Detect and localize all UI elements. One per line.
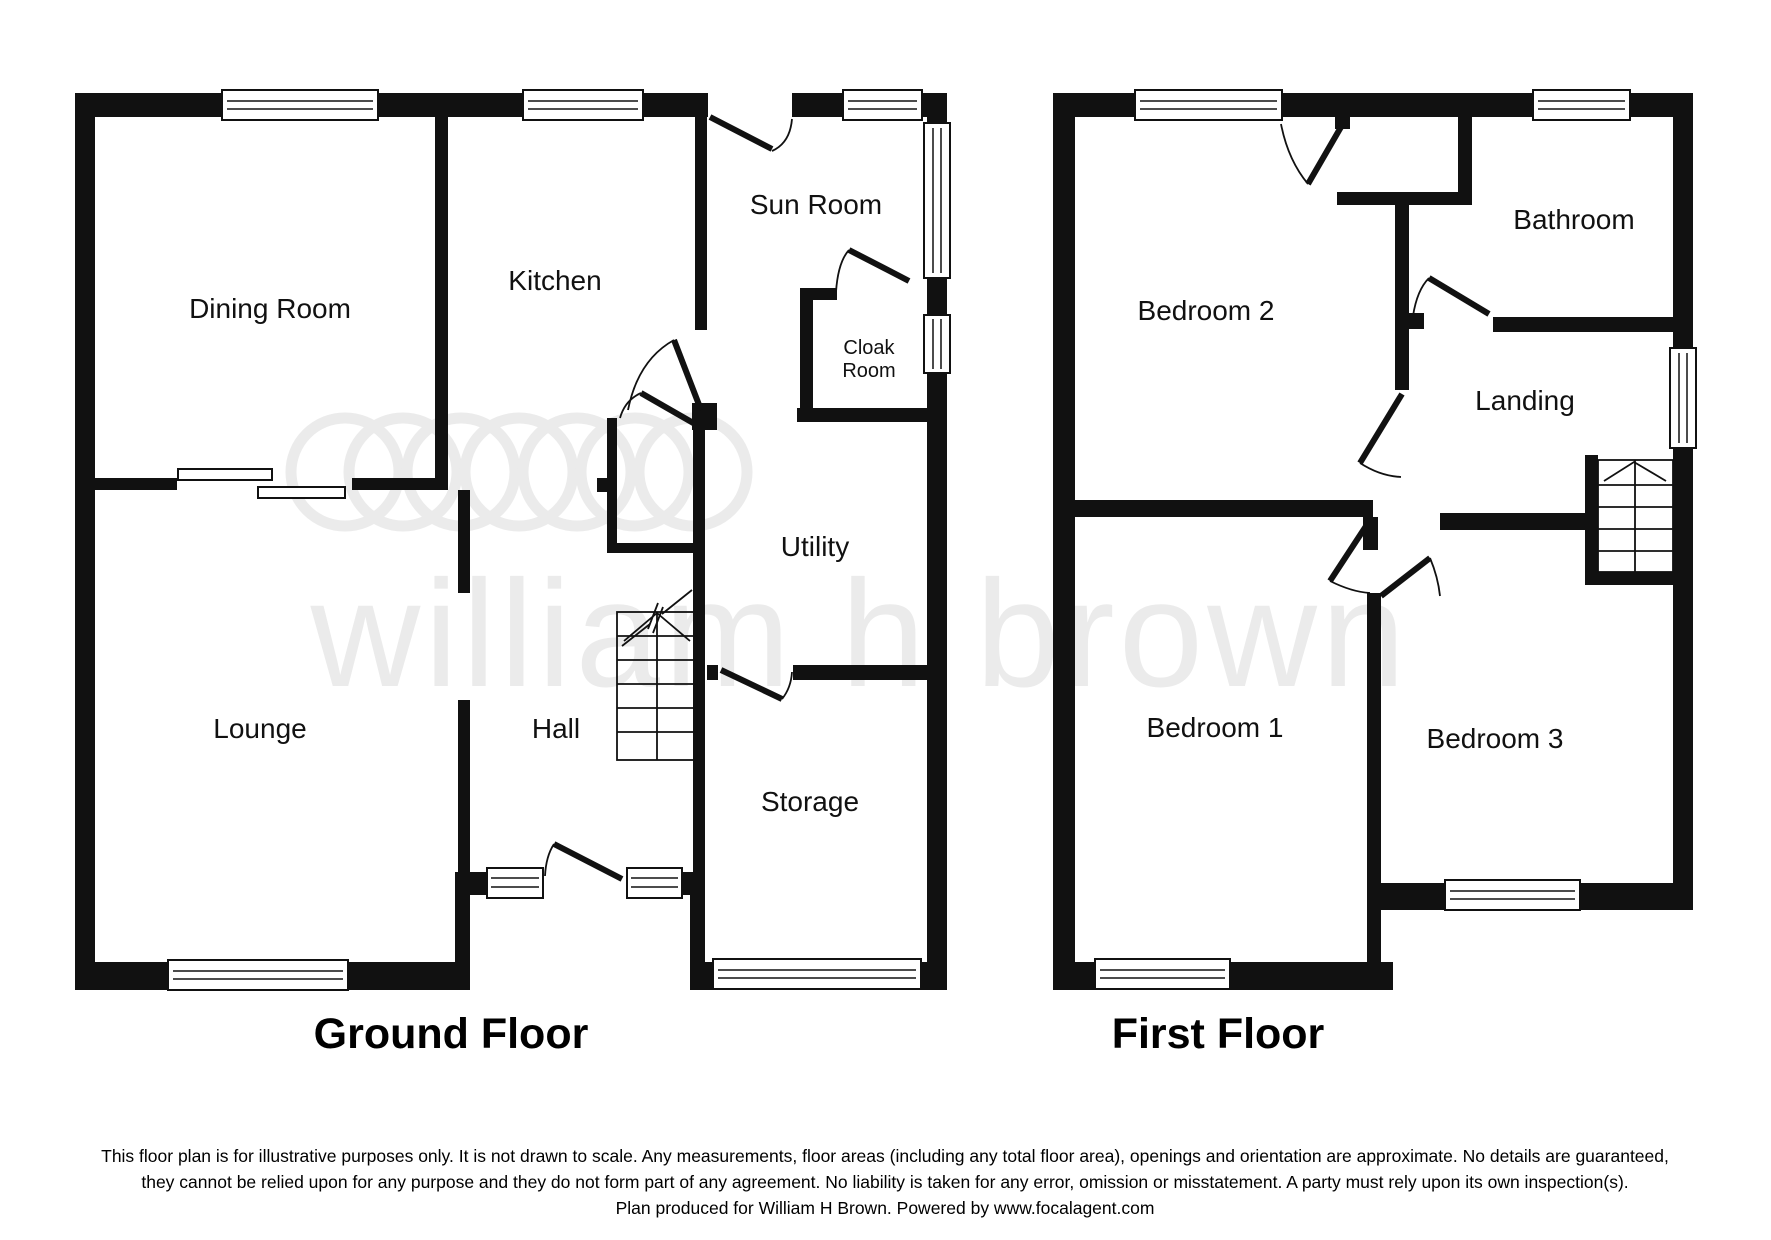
window-porch-right (627, 868, 682, 898)
window-bedroom3 (1445, 880, 1580, 910)
wall (921, 962, 947, 990)
wall (927, 278, 947, 315)
door-bedroom2 (1360, 394, 1402, 477)
window-kitchen (523, 90, 643, 120)
wall (1230, 962, 1393, 990)
wall (455, 872, 470, 990)
disclaimer: This floor plan is for illustrative purp… (101, 1146, 1669, 1218)
wall (1458, 117, 1472, 205)
door-cloakroom (836, 250, 909, 292)
wall (1282, 93, 1533, 117)
window-landing (1670, 348, 1696, 448)
disclaimer-line-2: they cannot be relied upon for any purpo… (141, 1172, 1628, 1192)
room-label-bedroom3: Bedroom 3 (1427, 723, 1564, 754)
room-label-kitchen: Kitchen (508, 265, 601, 296)
disclaimer-line-3: Plan produced for William H Brown. Power… (616, 1198, 1155, 1218)
wall (1673, 448, 1693, 910)
wall (1409, 313, 1424, 329)
wall (75, 962, 168, 990)
floorplan-canvas: william h brown (0, 0, 1771, 1240)
wall (1673, 93, 1693, 348)
room-label-cloak-line2: Room (842, 360, 895, 382)
first-floor-title: First Floor (1112, 1010, 1325, 1058)
wall (95, 478, 177, 490)
wall (1335, 115, 1350, 129)
door-airing-cupboard (1281, 124, 1341, 184)
wall (695, 117, 707, 330)
wall (75, 93, 95, 990)
door-bathroom (1413, 278, 1489, 316)
first-floor-plan: Bedroom 2 Bathroom Landing Bedroom 1 Bed… (1053, 90, 1696, 990)
window-sunroom-top (843, 90, 922, 120)
wall (1367, 593, 1381, 962)
wall (1585, 455, 1598, 585)
wall (352, 478, 448, 490)
wall (458, 490, 470, 593)
stairs-first (1598, 460, 1673, 572)
window-storage (713, 959, 921, 989)
room-label-storage: Storage (761, 786, 859, 817)
wall (800, 297, 813, 415)
room-label-sunroom: Sun Room (750, 189, 882, 220)
room-label-utility: Utility (781, 531, 849, 562)
door-sunroom-entrance (710, 117, 792, 151)
wall (1580, 883, 1693, 910)
window-cloakroom (924, 315, 950, 373)
wall (643, 93, 708, 117)
watermark-text: william h brown (310, 549, 1410, 719)
wall (607, 418, 617, 553)
wall (607, 543, 703, 553)
room-label-lounge: Lounge (213, 713, 306, 744)
wall (1440, 513, 1592, 530)
wall (1075, 500, 1373, 517)
wall (707, 665, 718, 680)
wall (1585, 572, 1693, 585)
window-bedroom2 (1135, 90, 1282, 120)
wall (348, 962, 470, 990)
room-label-bedroom2: Bedroom 2 (1138, 295, 1275, 326)
wall (1053, 962, 1095, 990)
ground-floor-plan: Dining Room Kitchen Sun Room Cloak Room … (75, 90, 950, 990)
room-label-hall: Hall (532, 713, 580, 744)
window-dining (222, 90, 378, 120)
wall (378, 93, 523, 117)
wall (927, 373, 947, 990)
room-label-bedroom1: Bedroom 1 (1147, 712, 1284, 743)
ground-floor-title: Ground Floor (314, 1010, 589, 1058)
wall (797, 408, 947, 422)
wall (705, 962, 713, 990)
wall (1395, 203, 1409, 390)
wall (693, 418, 705, 878)
wall (458, 700, 470, 880)
window-sunroom-right (924, 123, 950, 278)
wall (690, 872, 705, 990)
wall (792, 93, 843, 117)
wall (793, 665, 947, 680)
window-porch-left (487, 868, 543, 898)
room-label-bathroom: Bathroom (1513, 204, 1634, 235)
wall (597, 478, 607, 492)
wall (1053, 93, 1075, 990)
window-bedroom1 (1095, 959, 1230, 989)
room-label-cloak-line1: Cloak (843, 337, 895, 359)
floorplan-page: william h brown (0, 0, 1771, 1240)
watermark-logo-rings (291, 418, 747, 526)
wall (435, 117, 448, 488)
room-label-landing: Landing (1475, 385, 1575, 416)
wall (927, 93, 947, 123)
wall (1493, 317, 1673, 332)
window-bathroom (1533, 90, 1630, 120)
disclaimer-line-1: This floor plan is for illustrative purp… (101, 1146, 1669, 1166)
room-label-dining: Dining Room (189, 293, 351, 324)
door-front-entrance (545, 844, 622, 879)
wall (75, 93, 222, 117)
door-kitchen (628, 340, 701, 410)
window-lounge (168, 960, 348, 990)
sliding-door-dining-lounge (178, 469, 345, 498)
